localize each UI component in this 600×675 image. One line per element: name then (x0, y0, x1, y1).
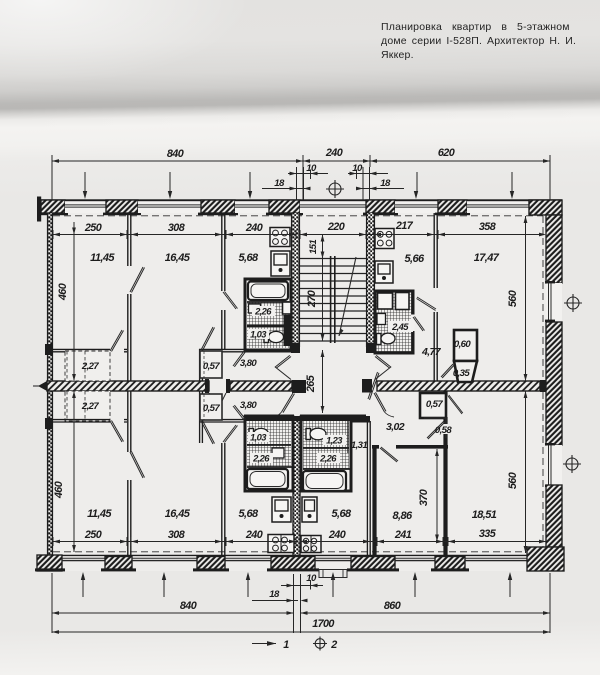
svg-text:2,26: 2,26 (252, 453, 270, 464)
svg-text:1,03: 1,03 (250, 329, 267, 340)
svg-text:2,45: 2,45 (391, 321, 409, 332)
svg-text:11,45: 11,45 (90, 252, 115, 264)
svg-text:2,27: 2,27 (81, 401, 100, 412)
svg-text:4,77: 4,77 (421, 346, 442, 358)
svg-text:560: 560 (507, 472, 519, 489)
svg-text:10: 10 (352, 163, 363, 174)
svg-text:560: 560 (507, 290, 519, 307)
svg-text:5,68: 5,68 (238, 252, 258, 264)
svg-text:5,68: 5,68 (331, 508, 351, 520)
svg-text:18: 18 (269, 589, 280, 600)
svg-text:250: 250 (84, 222, 102, 234)
svg-text:10: 10 (306, 163, 317, 174)
svg-text:308: 308 (168, 222, 185, 234)
svg-text:3,80: 3,80 (240, 358, 258, 369)
svg-text:358: 358 (479, 221, 496, 233)
svg-text:1,03: 1,03 (250, 432, 267, 443)
svg-text:370: 370 (418, 489, 430, 506)
svg-text:3,80: 3,80 (240, 400, 258, 411)
svg-text:2,26: 2,26 (254, 306, 272, 317)
svg-text:1,31: 1,31 (351, 440, 368, 451)
svg-text:2,26: 2,26 (319, 453, 337, 464)
svg-text:0,57: 0,57 (426, 399, 444, 410)
svg-text:18: 18 (274, 178, 285, 189)
svg-text:11,45: 11,45 (87, 508, 112, 520)
svg-text:241: 241 (394, 529, 412, 541)
svg-text:240: 240 (245, 529, 263, 541)
svg-text:860: 860 (384, 600, 401, 612)
svg-text:2,27: 2,27 (81, 361, 100, 372)
svg-text:840: 840 (180, 600, 197, 612)
svg-text:0,60: 0,60 (454, 339, 472, 350)
svg-text:151: 151 (308, 240, 319, 254)
svg-text:460: 460 (57, 283, 69, 301)
svg-text:1: 1 (283, 639, 289, 651)
svg-text:3,02: 3,02 (386, 421, 405, 433)
svg-text:2: 2 (330, 639, 337, 651)
svg-text:17,47: 17,47 (474, 252, 500, 264)
svg-text:10: 10 (306, 573, 317, 584)
svg-text:8,86: 8,86 (392, 510, 412, 522)
svg-text:840: 840 (167, 148, 184, 160)
svg-text:220: 220 (327, 221, 345, 233)
svg-text:308: 308 (168, 529, 185, 541)
svg-text:0,35: 0,35 (453, 368, 471, 379)
svg-text:250: 250 (84, 529, 102, 541)
svg-text:5,68: 5,68 (238, 508, 258, 520)
svg-text:16,45: 16,45 (165, 252, 191, 264)
svg-text:240: 240 (325, 147, 343, 159)
svg-text:620: 620 (438, 147, 455, 159)
svg-text:0,57: 0,57 (203, 361, 221, 372)
svg-text:335: 335 (479, 528, 497, 540)
svg-text:265: 265 (305, 374, 317, 393)
svg-text:5,66: 5,66 (404, 253, 424, 265)
svg-text:460: 460 (53, 481, 65, 499)
svg-text:16,45: 16,45 (165, 508, 191, 520)
svg-text:18: 18 (380, 178, 391, 189)
svg-text:1700: 1700 (312, 618, 334, 630)
svg-text:1,23: 1,23 (326, 435, 343, 446)
svg-text:240: 240 (245, 222, 263, 234)
svg-text:18,51: 18,51 (472, 509, 497, 521)
svg-text:0,58: 0,58 (435, 425, 453, 436)
svg-text:240: 240 (328, 529, 346, 541)
svg-text:0,57: 0,57 (203, 403, 221, 414)
svg-text:217: 217 (395, 220, 414, 232)
svg-text:270: 270 (306, 290, 318, 308)
